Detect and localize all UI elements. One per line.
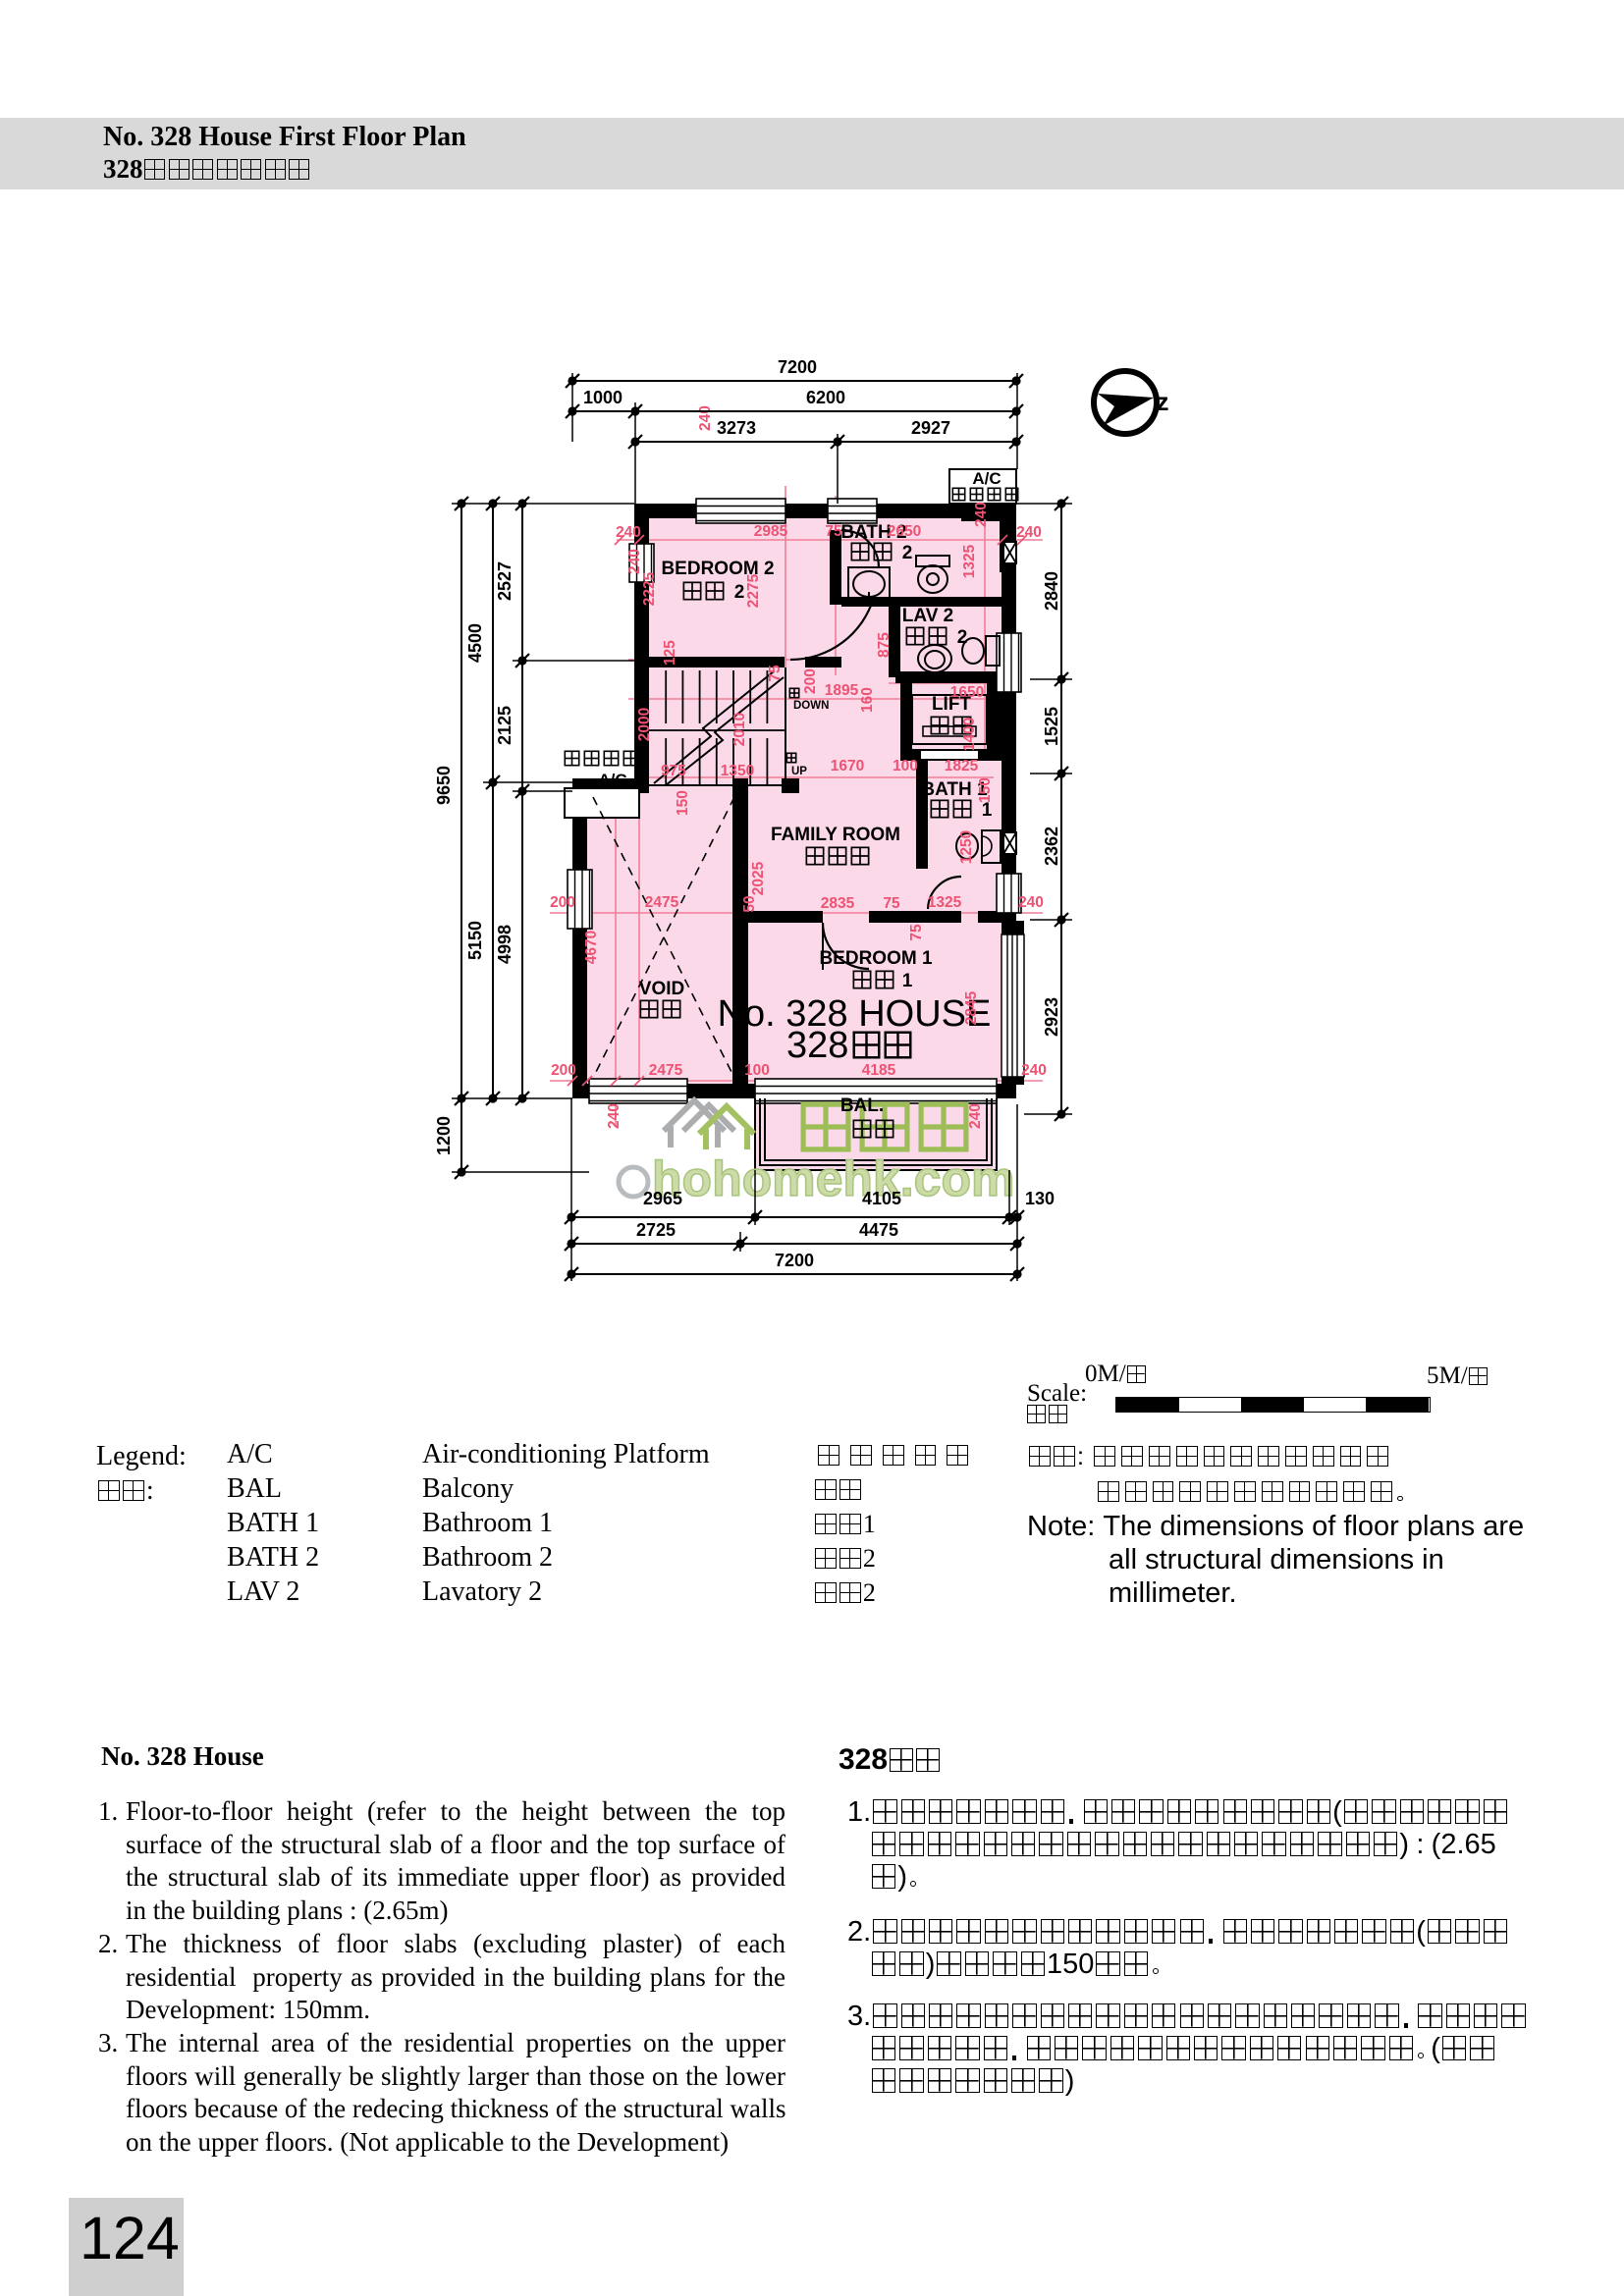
svg-text:200: 200 (551, 1062, 576, 1079)
svg-text:240: 240 (606, 1103, 623, 1129)
svg-text:4998: 4998 (495, 925, 514, 964)
svg-text:2845: 2845 (963, 990, 980, 1025)
svg-text:1895: 1895 (825, 682, 859, 699)
svg-text:2000: 2000 (636, 708, 653, 741)
svg-text:1525: 1525 (1042, 707, 1061, 746)
svg-text:6200: 6200 (806, 388, 845, 407)
svg-text:100: 100 (893, 758, 918, 774)
svg-text:2840: 2840 (1042, 571, 1061, 611)
svg-text:1250: 1250 (958, 830, 975, 864)
svg-text:DOWN: DOWN (793, 700, 829, 712)
svg-text:2923: 2923 (1042, 997, 1061, 1037)
svg-text:975: 975 (661, 763, 686, 779)
svg-text:4670: 4670 (583, 931, 600, 964)
svg-text:A/C: A/C (972, 469, 1001, 488)
svg-text:4105: 4105 (862, 1189, 901, 1208)
svg-text:1: 1 (902, 971, 913, 991)
svg-text:1325: 1325 (928, 894, 962, 911)
svg-text:160: 160 (859, 687, 876, 713)
svg-text:FAMILY ROOM: FAMILY ROOM (771, 825, 900, 845)
svg-text:240: 240 (1021, 1062, 1047, 1079)
svg-text:2010: 2010 (731, 713, 748, 746)
svg-text:LAV 2: LAV 2 (902, 606, 953, 626)
svg-text:125: 125 (662, 640, 678, 666)
svg-text:7200: 7200 (775, 1251, 814, 1270)
svg-text:150: 150 (977, 777, 994, 803)
svg-text:150: 150 (675, 790, 691, 816)
svg-text:1200: 1200 (434, 1116, 454, 1155)
svg-text:100: 100 (744, 1062, 770, 1079)
svg-text:240: 240 (626, 549, 643, 574)
svg-text:1650: 1650 (950, 684, 984, 701)
svg-text:A/C: A/C (598, 771, 626, 789)
svg-text:VOID: VOID (639, 979, 684, 999)
svg-text:2025: 2025 (750, 861, 767, 895)
svg-text:2927: 2927 (911, 418, 950, 438)
svg-text:9650: 9650 (434, 766, 454, 805)
svg-text:75: 75 (767, 665, 784, 682)
svg-text:2225: 2225 (641, 571, 658, 606)
svg-text:7200: 7200 (778, 357, 817, 377)
svg-text:240: 240 (1016, 524, 1042, 541)
svg-text:2725: 2725 (636, 1220, 676, 1240)
svg-text:BEDROOM 1: BEDROOM 1 (819, 948, 933, 969)
svg-text:1325: 1325 (961, 544, 978, 578)
svg-text:75: 75 (883, 895, 900, 912)
svg-text:BAL.: BAL. (840, 1095, 884, 1116)
svg-text:5150: 5150 (465, 921, 485, 960)
svg-text:2475: 2475 (649, 1062, 683, 1079)
svg-text:2: 2 (902, 543, 913, 563)
svg-text:200: 200 (550, 894, 575, 911)
svg-text:240: 240 (616, 524, 641, 541)
svg-text:2362: 2362 (1042, 827, 1061, 866)
svg-text:1825: 1825 (945, 758, 979, 774)
svg-text:No. 328 HOUSE: No. 328 HOUSE (718, 993, 992, 1035)
svg-text:50: 50 (741, 895, 758, 912)
svg-text:4500: 4500 (465, 623, 485, 663)
svg-text:2650: 2650 (888, 523, 921, 540)
svg-text:2275: 2275 (745, 573, 762, 608)
svg-text:75: 75 (908, 924, 925, 941)
svg-text:1400: 1400 (961, 718, 978, 751)
svg-text:200: 200 (802, 668, 819, 694)
svg-text:1350: 1350 (721, 763, 754, 779)
svg-text:2527: 2527 (495, 561, 514, 601)
svg-text:3273: 3273 (717, 418, 756, 438)
svg-text:1000: 1000 (583, 388, 623, 407)
svg-text:hohomehk.com: hohomehk.com (652, 1151, 1014, 1206)
svg-text:2125: 2125 (495, 706, 514, 745)
svg-text:130: 130 (1025, 1189, 1055, 1208)
svg-text:4185: 4185 (862, 1062, 896, 1079)
svg-text:75: 75 (825, 523, 842, 540)
svg-text:240: 240 (697, 405, 714, 431)
svg-text:UP: UP (791, 766, 807, 777)
svg-text:240: 240 (967, 1103, 984, 1129)
svg-text:2965: 2965 (643, 1189, 682, 1208)
svg-text:328: 328 (786, 1025, 848, 1066)
svg-text:2835: 2835 (821, 895, 855, 912)
svg-text:2: 2 (734, 582, 745, 603)
svg-text:240: 240 (973, 502, 990, 527)
svg-text:z: z (1157, 387, 1169, 416)
svg-text:875: 875 (876, 632, 893, 658)
svg-text:4475: 4475 (859, 1220, 898, 1240)
svg-text:2985: 2985 (754, 523, 788, 540)
svg-text:2475: 2475 (645, 894, 679, 911)
svg-text:2: 2 (957, 627, 968, 648)
svg-text:1670: 1670 (831, 758, 864, 774)
svg-text:240: 240 (1018, 894, 1044, 911)
